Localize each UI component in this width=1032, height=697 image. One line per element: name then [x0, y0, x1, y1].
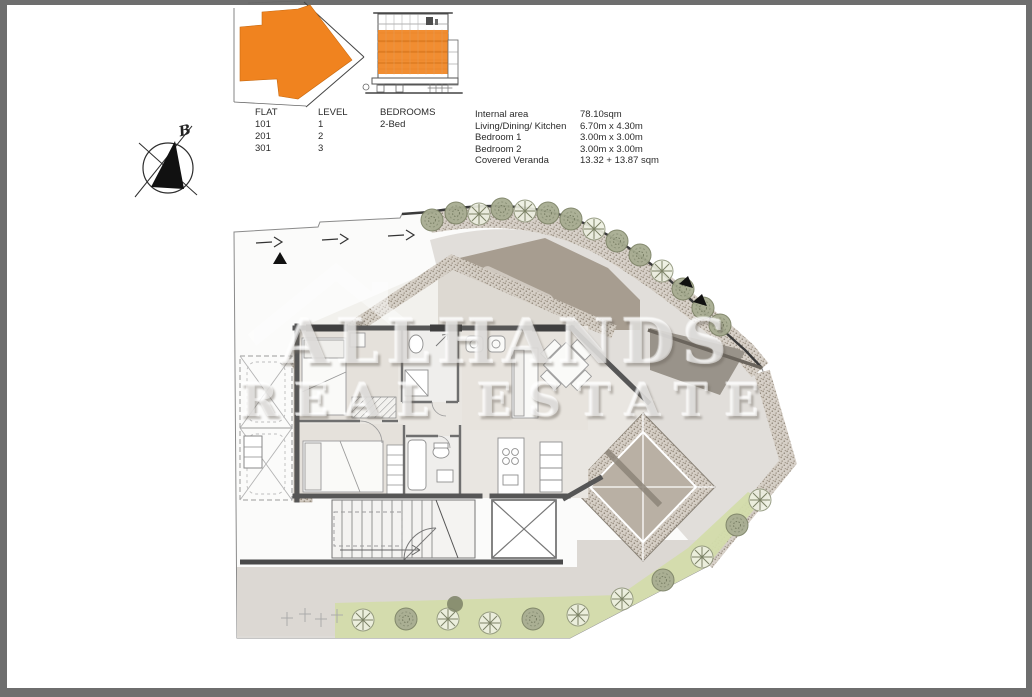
spec-label: Bedroom 1 — [475, 132, 580, 144]
spec-value: 78.10sqm — [580, 109, 659, 121]
spec-value: 3.00m x 3.00m — [580, 132, 659, 144]
unit-col-flat: FLAT — [255, 107, 318, 119]
site-key-arrow — [234, 1, 364, 107]
site-plan — [234, 198, 791, 638]
floor-plan-drawing — [0, 0, 1032, 697]
unit-table: FLAT LEVEL BEDROOMS 101 1 2-Bed 201 2 30… — [255, 107, 455, 155]
unit-cell: 201 — [255, 131, 318, 143]
unit-cell: 301 — [255, 143, 318, 155]
spec-value: 6.70m x 4.30m — [580, 121, 659, 133]
unit-cell: 101 — [255, 119, 318, 131]
wardrobe-hatch — [352, 397, 396, 418]
closet — [387, 445, 404, 494]
spec-value: 13.32 + 13.87 sqm — [580, 155, 659, 167]
spec-label: Bedroom 2 — [475, 144, 580, 156]
unit-cell: 2-Bed — [380, 119, 455, 131]
floorplan-sheet: FLAT LEVEL BEDROOMS 101 1 2-Bed 201 2 30… — [0, 0, 1032, 697]
unit-cell: 2 — [318, 131, 380, 143]
unit-cell — [380, 143, 455, 155]
spec-label: Covered Veranda — [475, 155, 580, 167]
unit-col-level: LEVEL — [318, 107, 380, 119]
spec-label: Internal area — [475, 109, 580, 121]
unit-cell: 3 — [318, 143, 380, 155]
unit-col-bedrooms: BEDROOMS — [380, 107, 455, 119]
building-elevation — [363, 13, 462, 93]
bed-2 — [303, 441, 383, 492]
spec-label: Living/Dining/ Kitchen — [475, 121, 580, 133]
specs-table: Internal area 78.10sqm Living/Dining/ Ki… — [475, 109, 659, 167]
unit-cell: 1 — [318, 119, 380, 131]
spec-value: 3.00m x 3.00m — [580, 144, 659, 156]
key-plan-highlight — [240, 5, 352, 99]
unit-cell — [380, 131, 455, 143]
